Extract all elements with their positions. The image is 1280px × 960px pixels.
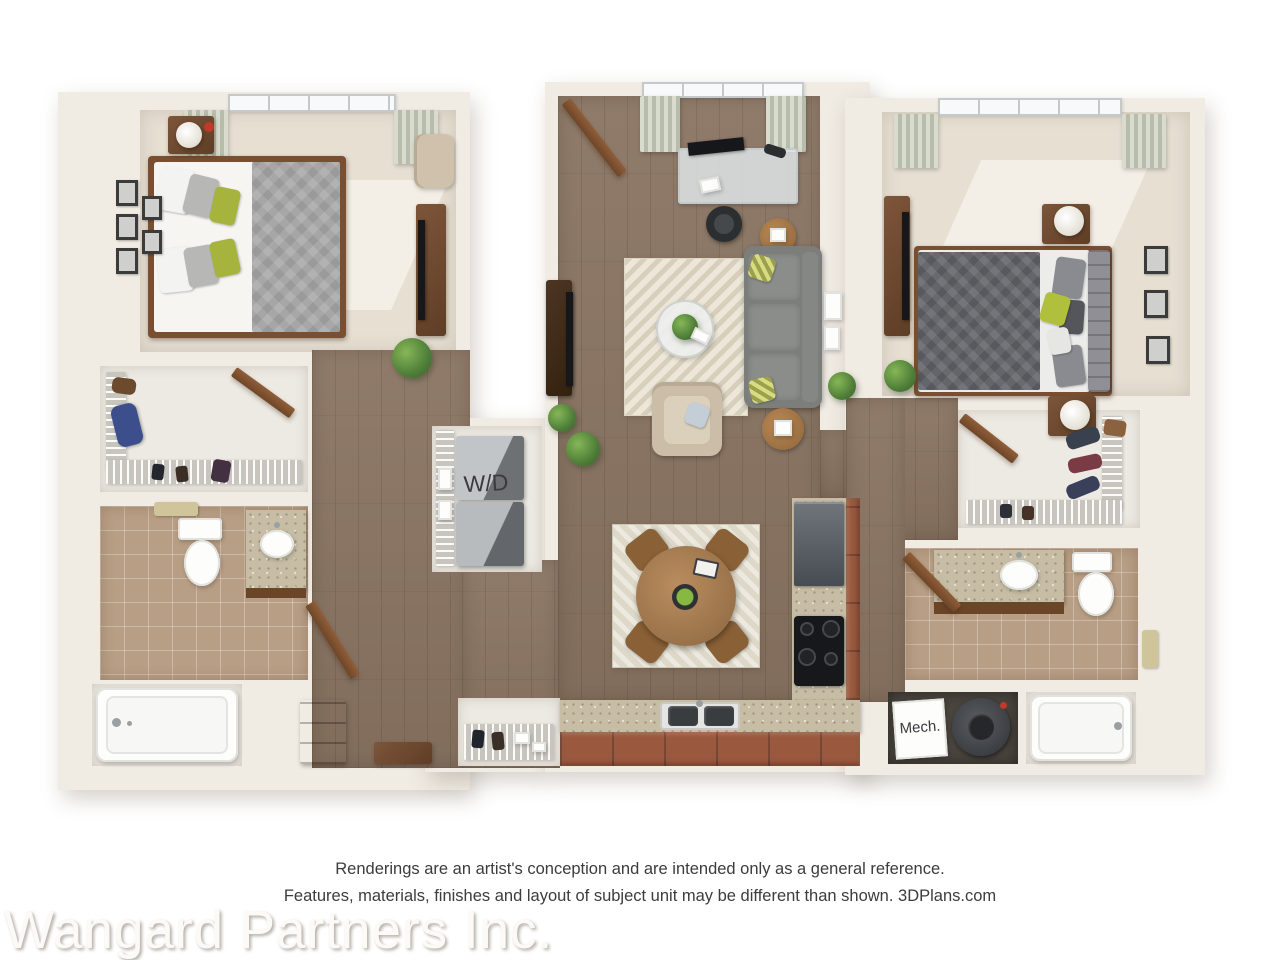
side-table-sofa-tray <box>774 420 792 436</box>
kitchen-cabinet-face-column <box>846 498 860 700</box>
plant-living-a <box>548 404 576 432</box>
bed-left-duvet <box>252 162 340 332</box>
wall-art-living-b <box>824 326 840 350</box>
bed-right-pillow-white <box>1046 326 1072 355</box>
dining-fruit-bowl <box>672 584 698 610</box>
closet-right-shelf-horizontal <box>966 500 1122 524</box>
water-heater-tank-cap <box>968 714 994 740</box>
tv-living <box>566 292 573 386</box>
hall-closet-shoe-a <box>471 730 485 749</box>
floor-plan-rendering: W/D <box>0 0 1280 960</box>
curtain-entry-a <box>640 96 680 152</box>
wall-art-left-1 <box>116 180 138 206</box>
sink-right-bath <box>1000 560 1038 590</box>
sofa-cushion-2 <box>748 304 800 350</box>
disclaimer-line-1: Renderings are an artist's conception an… <box>0 856 1280 883</box>
closet-right-basket <box>1103 419 1127 438</box>
armchair-left-bedroom <box>414 134 454 188</box>
closet-left-shelf-horizontal <box>106 460 302 484</box>
closet-left-boots <box>210 459 232 484</box>
window-bedroom-right <box>938 98 1122 116</box>
wall-art-living-a <box>824 292 842 320</box>
lamp-left-bedroom <box>176 122 202 148</box>
vanity-left-bath-cabinet <box>246 588 306 598</box>
hall-closet-shoe-b <box>491 732 505 751</box>
hall-closet-box-a <box>514 732 530 744</box>
toilet-right-tank <box>1072 552 1112 572</box>
hall-desk-shelf <box>374 742 432 764</box>
wall-art-right-3 <box>1146 336 1170 364</box>
closet-left-shoe-a <box>151 463 165 480</box>
curtain-bedroom-right-b <box>1122 114 1166 168</box>
kitchen-cabinet-face-bottom <box>560 732 860 766</box>
closet-right-shoe-a <box>1000 504 1012 518</box>
plant-living-b <box>566 432 600 466</box>
toilet-left-bowl <box>184 540 220 586</box>
lamp-right-top <box>1054 206 1084 236</box>
window-bedroom-left <box>228 94 396 112</box>
kitchen-pass-floor <box>820 430 846 500</box>
wall-art-left-3 <box>116 248 138 274</box>
bed-right-duvet <box>918 252 1040 390</box>
tv-right-bedroom <box>902 212 909 320</box>
bathtub-right-basin <box>1038 702 1124 754</box>
kitchen-faucet <box>696 700 703 707</box>
lamp-right-bottom <box>1060 400 1090 430</box>
plant-sofa-right <box>828 372 856 400</box>
towel-right-bath <box>1142 630 1158 668</box>
wall-art-right-2 <box>1144 290 1168 318</box>
toilet-right-bowl <box>1078 572 1114 616</box>
closet-left-basket <box>111 376 137 395</box>
hall-closet-box-b <box>532 742 546 752</box>
wall-art-right-1 <box>1144 246 1168 274</box>
cooktop-burner-2 <box>822 620 840 638</box>
closet-left-shoe-b <box>175 465 189 482</box>
plant-right-bedroom <box>884 360 916 392</box>
wall-art-left-5 <box>142 230 162 254</box>
cooktop-burner-3 <box>798 648 816 666</box>
refrigerator <box>794 502 844 586</box>
wall-art-left-2 <box>116 214 138 240</box>
kitchen-sink-basin-left <box>668 706 698 726</box>
closet-right-shoe-b <box>1022 506 1034 520</box>
washer-dryer-label: W/D <box>449 466 522 500</box>
wall-art-left-4 <box>142 196 162 220</box>
office-chair-seat <box>714 214 734 234</box>
tv-left-bedroom <box>418 220 425 320</box>
kitchen-sink-basin-right <box>704 706 734 726</box>
laundry-basket-b <box>438 500 452 520</box>
bathtub-left-faucet <box>127 721 132 726</box>
mechanical-label: Mech. <box>893 712 947 742</box>
watermark: Wangard Partners Inc. <box>4 900 553 960</box>
hall-dresser <box>300 700 346 764</box>
bathtub-left-drain <box>112 718 121 727</box>
toilet-left-tank <box>178 518 222 540</box>
bathtub-left-basin <box>106 696 228 754</box>
bed-right-headboard <box>1088 250 1110 392</box>
bathtub-right-drain <box>1114 722 1122 730</box>
dryer-unit <box>456 502 524 566</box>
sofa-back-cushions <box>802 252 818 402</box>
faucet-left-bath <box>274 522 280 528</box>
cooktop-burner-4 <box>824 652 838 666</box>
plant-left-bedroom <box>392 338 432 378</box>
water-heater-valve <box>1000 702 1007 709</box>
curtain-entry-b <box>766 96 806 152</box>
side-table-entry-box <box>770 228 786 242</box>
flower-vase-left-bedroom <box>204 122 214 132</box>
faucet-right-bath <box>1016 552 1022 558</box>
sink-left-bath <box>260 530 294 558</box>
cooktop-burner-1 <box>800 622 814 636</box>
towel-left-bath <box>154 502 198 516</box>
curtain-bedroom-right-a <box>894 114 938 168</box>
